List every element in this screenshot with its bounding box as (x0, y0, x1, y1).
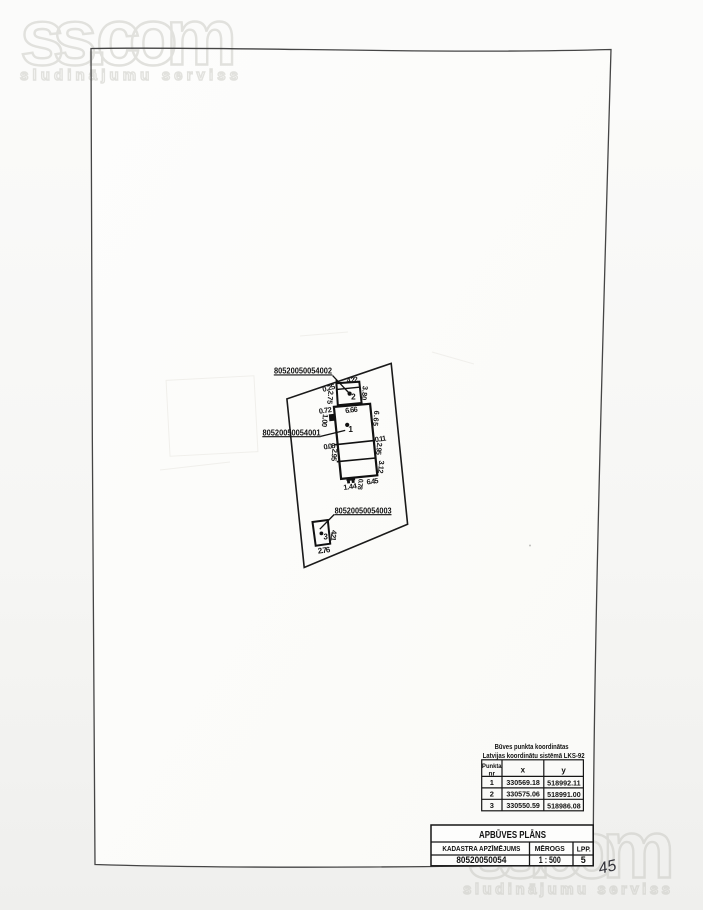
svg-text:2: 2 (490, 790, 494, 799)
svg-text:Latvijas koordinātu sistēmā LK: Latvijas koordinātu sistēmā LKS-92 (483, 753, 585, 760)
svg-text:2.95: 2.95 (329, 448, 339, 461)
svg-text:Būves punkta koordinātas: Būves punkta koordinātas (495, 744, 569, 751)
svg-text:MĒROGS: MĒROGS (535, 844, 565, 853)
svg-text:nr: nr (489, 770, 496, 777)
svg-text:Punkta: Punkta (482, 763, 502, 770)
svg-text:1: 1 (348, 425, 353, 434)
svg-text:6.66: 6.66 (345, 405, 359, 415)
svg-text:518986.08: 518986.08 (547, 801, 581, 810)
svg-text:APBŪVES PLĀNS: APBŪVES PLĀNS (479, 830, 546, 841)
svg-text:0.78: 0.78 (356, 478, 364, 490)
svg-text:5: 5 (581, 855, 586, 865)
svg-text:3: 3 (324, 533, 329, 542)
svg-text:330569.18: 330569.18 (506, 778, 540, 787)
svg-text:x: x (521, 765, 526, 774)
svg-text:4.22: 4.22 (346, 375, 359, 386)
svg-text:3.12: 3.12 (376, 460, 386, 474)
svg-text:80520050054002: 80520050054002 (274, 366, 333, 375)
svg-text:6.65: 6.65 (371, 410, 382, 426)
svg-text:3.80: 3.80 (359, 385, 369, 400)
svg-text:330550.59: 330550.59 (506, 801, 540, 810)
svg-text:2.95: 2.95 (374, 442, 384, 455)
svg-text:KADASTRA APZĪMĒJUMS: KADASTRA APZĪMĒJUMS (442, 844, 520, 853)
svg-text:3: 3 (490, 801, 494, 810)
svg-text:2.75: 2.75 (325, 390, 335, 404)
svg-text:80520050054: 80520050054 (456, 855, 506, 865)
svg-text:LPP.: LPP. (577, 844, 591, 853)
svg-text:80520050054001: 80520050054001 (263, 429, 322, 438)
svg-text:y: y (561, 766, 566, 775)
svg-text:330575.06: 330575.06 (506, 790, 540, 799)
svg-text:6.45: 6.45 (366, 476, 379, 486)
svg-text:80520050054003: 80520050054003 (335, 506, 392, 515)
svg-text:4.21: 4.21 (329, 530, 339, 542)
svg-text:1 : 500: 1 : 500 (539, 855, 561, 865)
svg-text:1: 1 (490, 778, 494, 787)
svg-text:2.76: 2.76 (317, 545, 331, 556)
svg-text:518991.00: 518991.00 (547, 790, 581, 799)
svg-text:1.00: 1.00 (320, 414, 330, 428)
svg-text:2: 2 (351, 393, 356, 402)
svg-text:518992.11: 518992.11 (547, 779, 581, 788)
